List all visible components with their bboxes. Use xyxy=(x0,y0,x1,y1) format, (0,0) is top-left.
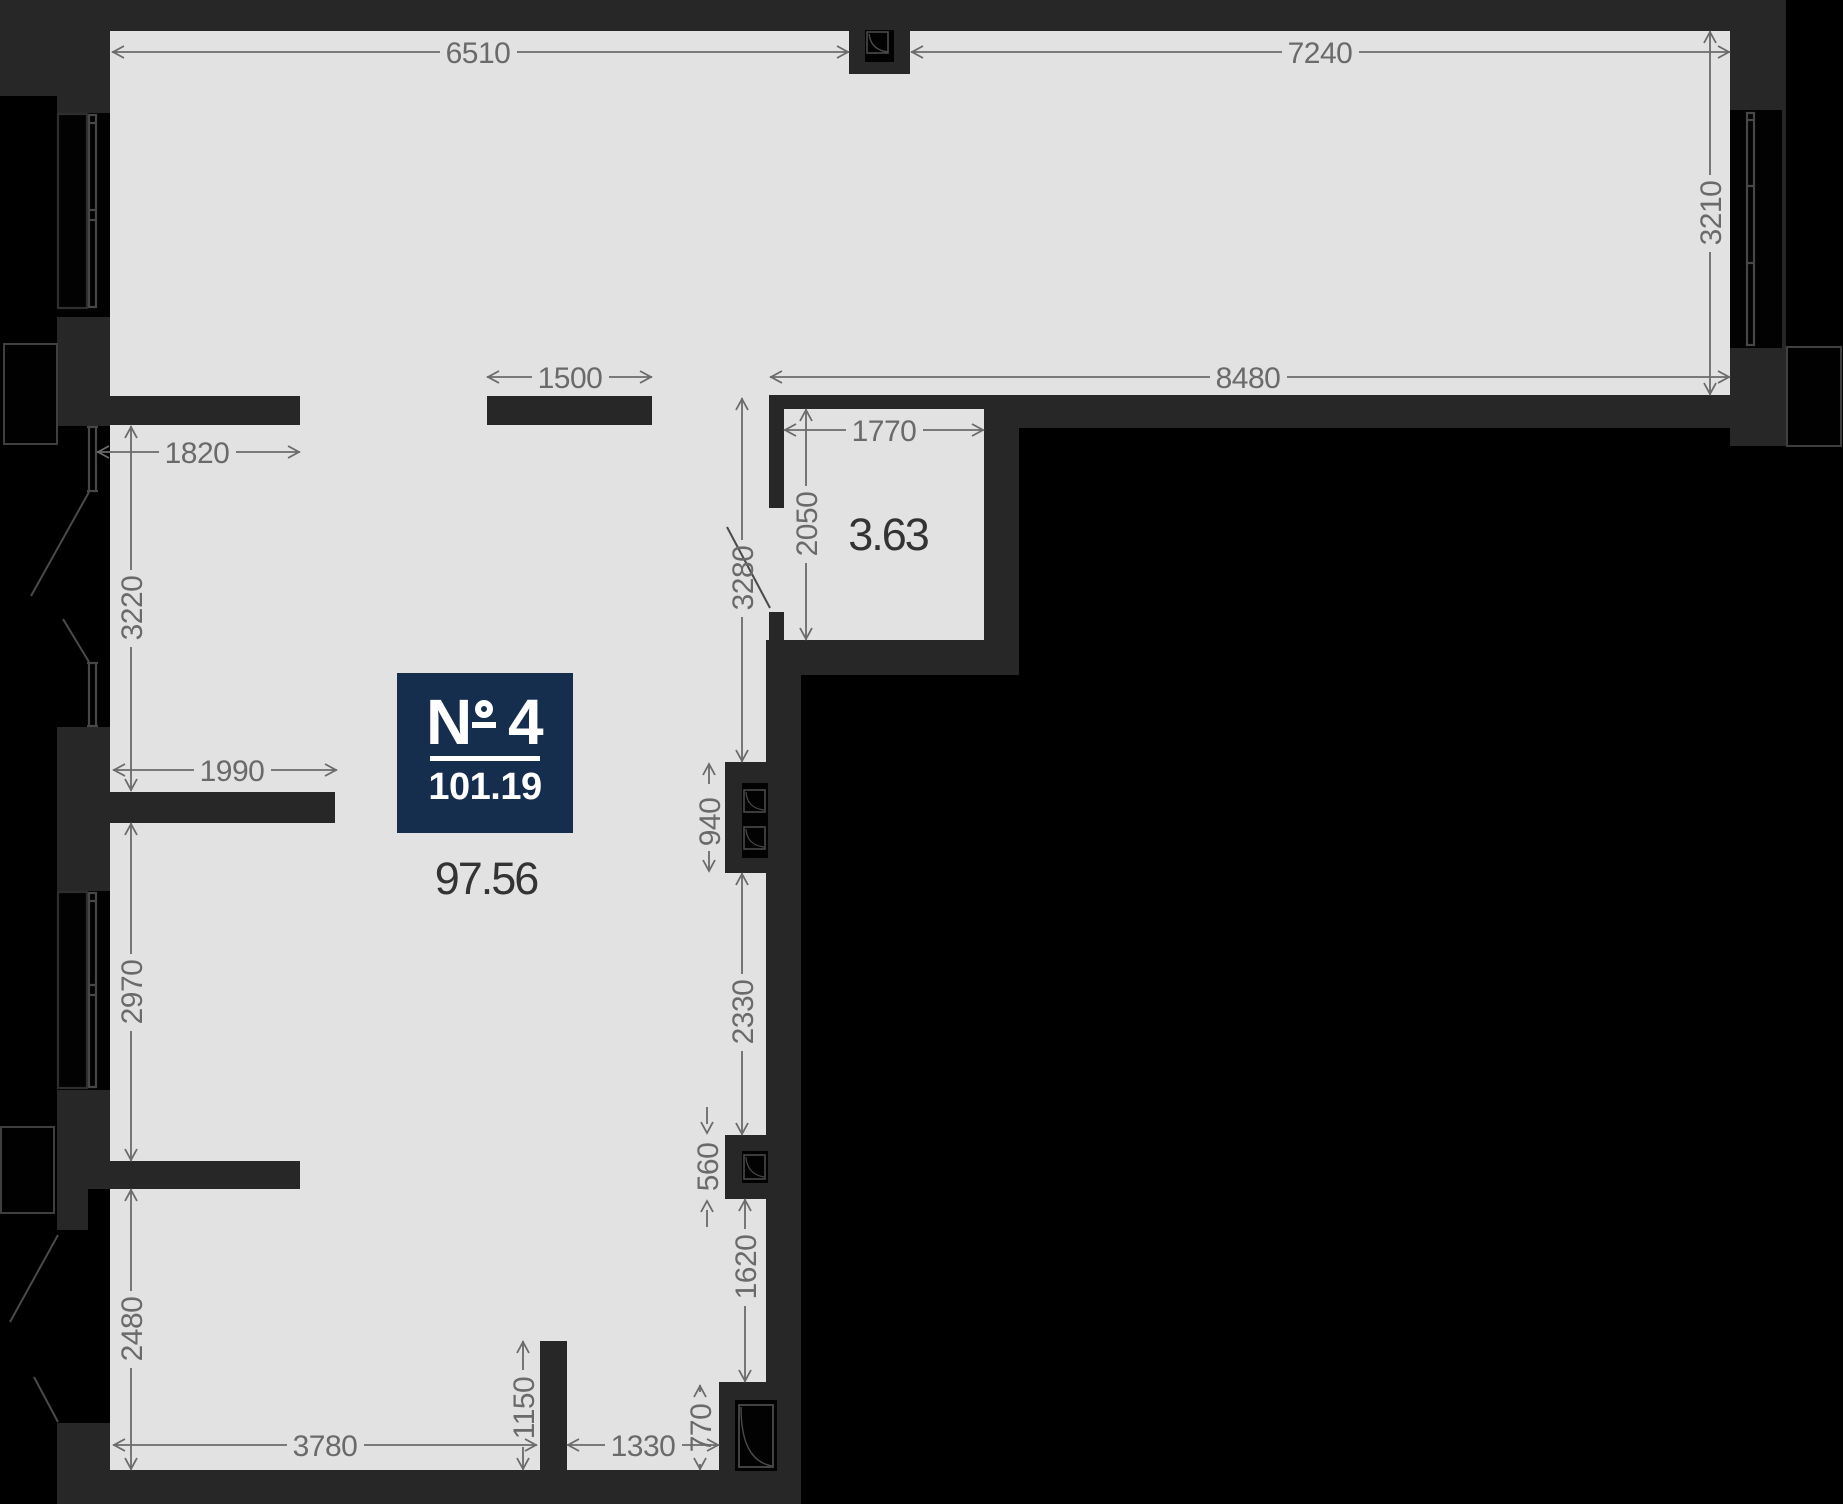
svg-text:1990: 1990 xyxy=(200,755,265,788)
svg-text:2480: 2480 xyxy=(116,1297,149,1362)
svg-text:1330: 1330 xyxy=(611,1430,676,1463)
svg-text:1500: 1500 xyxy=(538,362,603,395)
svg-text:97.56: 97.56 xyxy=(435,853,539,904)
svg-text:101.19: 101.19 xyxy=(428,766,541,808)
svg-text:1820: 1820 xyxy=(165,437,230,470)
svg-text:1620: 1620 xyxy=(730,1235,763,1300)
svg-text:1770: 1770 xyxy=(852,415,917,448)
svg-text:4: 4 xyxy=(508,686,544,758)
svg-text:2050: 2050 xyxy=(791,492,824,557)
svg-text:2330: 2330 xyxy=(727,980,760,1045)
svg-text:N: N xyxy=(426,686,472,758)
svg-text:1150: 1150 xyxy=(508,1377,541,1440)
svg-text:3280: 3280 xyxy=(727,546,760,611)
svg-text:3210: 3210 xyxy=(1695,181,1728,246)
svg-text:3.63: 3.63 xyxy=(848,509,929,560)
svg-text:3220: 3220 xyxy=(116,576,149,641)
svg-text:6510: 6510 xyxy=(446,37,511,70)
svg-text:770: 770 xyxy=(685,1404,718,1453)
svg-text:7240: 7240 xyxy=(1288,37,1353,70)
svg-text:560: 560 xyxy=(692,1143,725,1192)
svg-text:8480: 8480 xyxy=(1216,362,1281,395)
svg-text:3780: 3780 xyxy=(293,1430,358,1463)
svg-text:2970: 2970 xyxy=(116,960,149,1025)
svg-text:940: 940 xyxy=(694,798,727,847)
